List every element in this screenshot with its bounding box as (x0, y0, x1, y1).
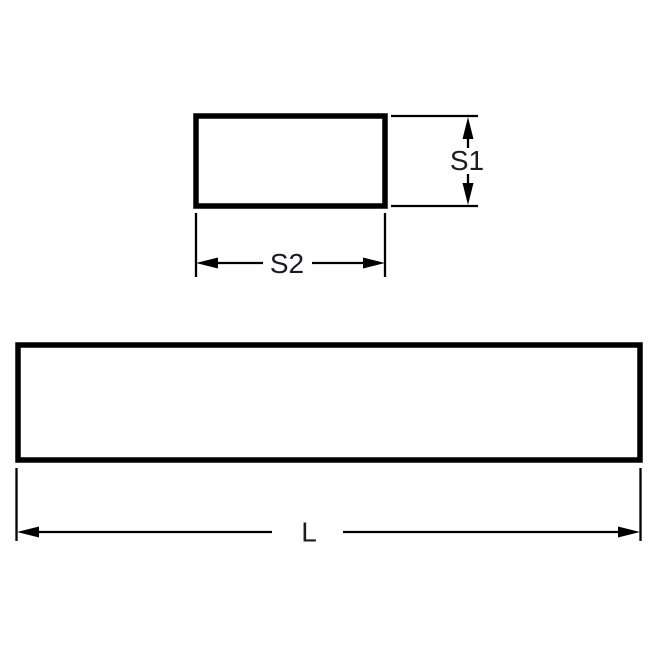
s2-label: S2 (270, 248, 304, 279)
cross-section-view: S1 S2 (196, 116, 484, 279)
arrowhead-right-icon (618, 527, 640, 538)
side-view: L (17, 345, 641, 548)
arrowhead-left-icon (17, 527, 39, 538)
s1-label: S1 (450, 145, 484, 176)
arrowhead-up-icon (463, 117, 474, 139)
arrowhead-left-icon (196, 258, 218, 269)
arrowhead-right-icon (363, 258, 385, 269)
s2-dimension: S2 (196, 213, 385, 279)
side-view-rect (18, 345, 640, 460)
drawing-canvas: S1 S2 L (0, 0, 670, 670)
technical-drawing: S1 S2 L (0, 0, 670, 670)
s1-dimension: S1 (391, 116, 484, 206)
cross-section-rect (196, 116, 385, 206)
l-dimension: L (17, 468, 641, 548)
l-label: L (301, 517, 317, 548)
arrowhead-down-icon (463, 183, 474, 205)
